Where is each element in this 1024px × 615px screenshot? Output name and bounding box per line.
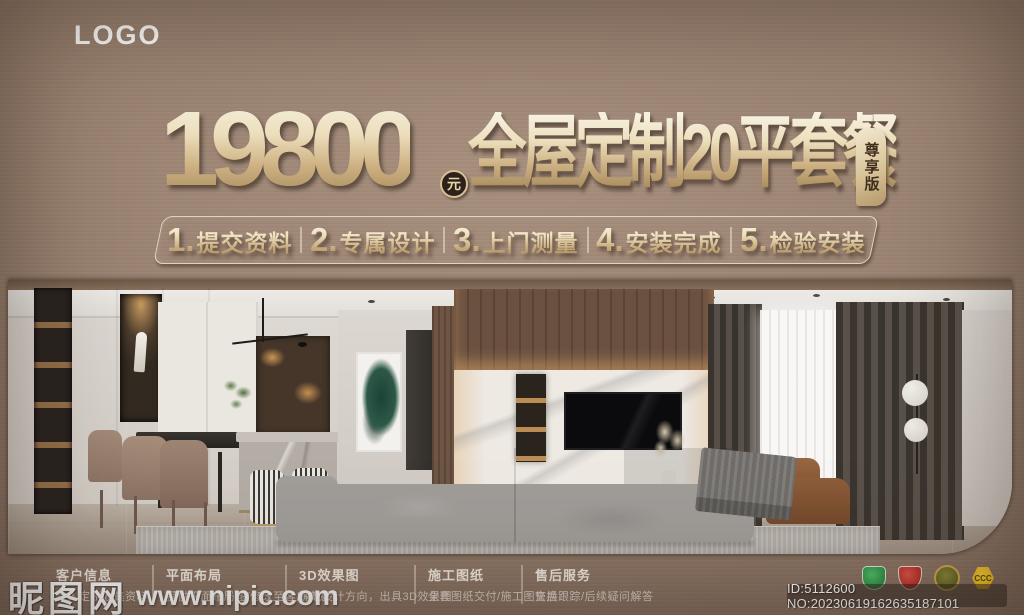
- interior-photo: [8, 280, 1012, 554]
- nipic-logo-text: 昵图网: [8, 570, 128, 615]
- scene-pendant-bulb: [298, 342, 307, 347]
- footer-col-title: 售后服务: [535, 565, 661, 584]
- step-5: 5. 检验安装: [740, 221, 866, 259]
- footer-col-after-sales: 售后服务 售后跟踪/后续疑问解答: [521, 565, 661, 604]
- footer-col-desc: 售后跟踪/后续疑问解答: [535, 588, 661, 604]
- scene-floor-lamp-disc: [902, 380, 928, 406]
- footer-col-construction-drawings: 施工图纸 全套图纸交付/施工图交换: [414, 565, 521, 604]
- nipic-url-text: www.nipic.com: [136, 580, 339, 612]
- scene-display-shelf: [34, 288, 72, 514]
- scene-chair-legs: [100, 490, 103, 528]
- scene-dining-chair: [88, 430, 122, 482]
- scene-sofa-body: [276, 484, 754, 542]
- step-2-label: 专属设计: [340, 224, 436, 258]
- package-title: 全屋定制20平套餐: [468, 112, 896, 192]
- step-divider: [443, 227, 445, 253]
- scene-island-counter: [236, 432, 340, 442]
- step-4: 4. 安装完成: [596, 221, 722, 259]
- poster-canvas: LOGO 19800 元 全屋定制20平套餐 尊享版 1. 提交资料 2. 专属…: [0, 0, 1024, 615]
- scene-dark-wood-cabinet: [256, 336, 330, 434]
- nipic-watermark: 昵图网 www.nipic.com: [8, 570, 339, 615]
- logo-text: LOGO: [74, 20, 162, 51]
- scene-right-wall: [962, 310, 1012, 526]
- step-3: 3. 上门测量: [453, 221, 579, 259]
- scene-pendant-rod: [262, 298, 264, 342]
- footer-col-title: 施工图纸: [428, 565, 521, 584]
- step-2: 2. 专属设计: [310, 221, 436, 259]
- scene-dining-chair: [160, 440, 208, 508]
- step-2-number: 2.: [310, 221, 338, 259]
- step-3-label: 上门测量: [483, 224, 579, 258]
- step-3-number: 3.: [453, 221, 481, 259]
- yuan-unit-circle: 元: [440, 170, 468, 198]
- step-4-label: 安装完成: [626, 224, 722, 258]
- scene-floor-lamp-disc: [904, 418, 928, 442]
- step-1-label: 提交资料: [196, 224, 292, 258]
- premium-edition-badge: 尊享版: [856, 128, 886, 206]
- step-1-number: 1.: [167, 221, 195, 259]
- scene-plant: [220, 372, 256, 418]
- stock-id-watermark: ID:5112600 NO:20230619162635187101: [787, 584, 1007, 607]
- scene-wall-art: [356, 352, 402, 452]
- step-divider: [300, 227, 302, 253]
- footer-col-desc: 全套图纸交付/施工图交换: [428, 588, 521, 604]
- step-divider: [587, 227, 589, 253]
- scene-curtain-right: [836, 302, 964, 540]
- step-5-label: 检验安装: [769, 224, 865, 258]
- process-steps-bar: 1. 提交资料 2. 专属设计 3. 上门测量 4. 安装完成 5. 检验安装: [153, 216, 879, 264]
- step-4-number: 4.: [596, 221, 624, 259]
- step-divider: [730, 227, 732, 253]
- price-headline: 19800: [160, 96, 410, 202]
- step-5-number: 5.: [740, 221, 768, 259]
- scene-wood-panel-wall: [454, 289, 714, 371]
- scene-throw-blanket: [695, 447, 797, 521]
- step-1: 1. 提交资料: [167, 221, 293, 259]
